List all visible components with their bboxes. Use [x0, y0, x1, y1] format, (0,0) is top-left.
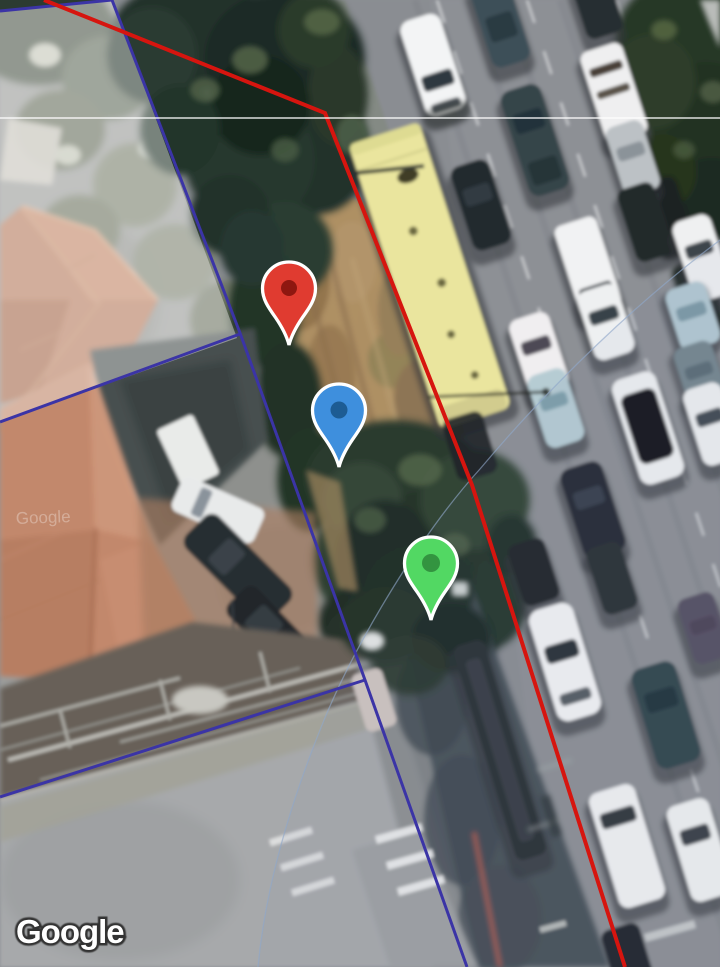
- svg-text:Google: Google: [16, 913, 124, 950]
- svg-text:Google: Google: [15, 507, 70, 528]
